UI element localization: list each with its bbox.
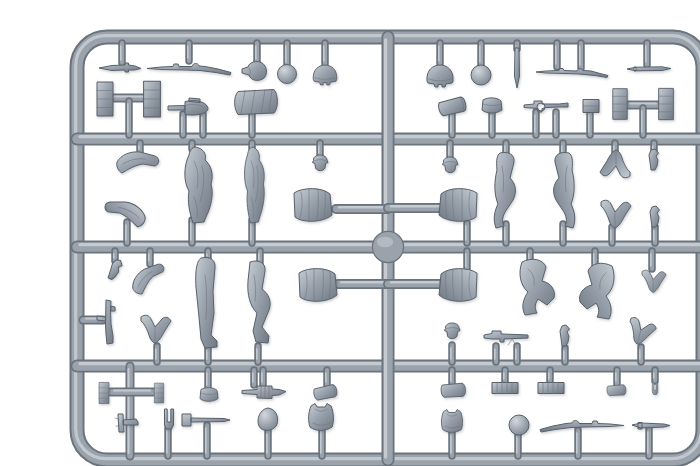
gate [188,43,189,61]
leg-straight-1 [196,257,217,348]
gate [535,112,536,135]
gate [466,223,467,243]
spoon-1 [258,408,278,430]
gate [257,346,258,362]
walking-legs-2 [554,152,575,228]
tunic-2 [441,410,462,433]
pick-1 [632,423,670,430]
gate [648,429,649,456]
gate [495,346,496,362]
center-boss [372,231,404,263]
helmet-1 [313,65,337,85]
hand-1 [649,149,659,170]
cylinder-1 [607,385,626,396]
gate [564,348,565,362]
rifle-1 [147,63,231,75]
ribbed-box-1 [492,383,518,394]
gate [126,222,127,243]
gate [182,114,183,135]
gate [256,43,257,62]
ammo-crate-1 [97,82,113,116]
gate [191,220,192,243]
head-3 [445,323,461,339]
gate [167,428,168,456]
gate [654,370,655,381]
head-ball-1 [278,65,297,84]
gate [562,224,563,243]
gate [191,143,192,149]
gate [589,111,590,135]
gate [517,434,518,456]
helmet-2 [427,65,453,87]
arms-pair-2 [601,200,631,228]
gate [451,112,452,135]
gate [646,43,647,65]
gate [577,430,578,456]
gate [324,43,325,64]
gate [262,370,263,385]
gate [451,345,452,362]
leg-bent-1 [248,261,270,343]
torso-4 [439,269,477,302]
rifle-bayonet-1 [536,69,608,78]
gate [451,432,452,456]
ammo-crate-5 [99,382,109,403]
gate [202,114,203,135]
gate [504,370,505,382]
runner-left-bottom-vertical [128,366,130,456]
head-ball-2 [471,65,491,85]
peg-1 [515,48,520,88]
gate [128,101,129,135]
gate [321,429,322,456]
pouch-2 [200,388,218,402]
greatcoat-figure-2 [245,147,265,223]
gate [139,143,140,152]
gate [121,43,122,63]
mess-tin-1 [438,96,467,116]
gate [286,43,287,65]
ammo-belt-1 [242,386,286,399]
fork-1 [165,409,174,429]
mg34-1 [524,101,568,112]
canteen-1 [242,62,266,81]
ammo-box-1 [583,100,599,113]
sprue-photo: Grey injection-moulded plastic model spr… [40,16,700,466]
gate [439,43,440,64]
kneeling-legs-1 [520,259,554,315]
torso-arm-lower-left [338,282,388,284]
gate [319,143,320,156]
torso-2 [439,189,477,222]
arm-5 [625,317,658,348]
hand-4 [560,325,570,346]
sprue-image [40,16,700,466]
gate [549,370,550,382]
mg42-1 [484,331,528,345]
torso-1 [294,189,332,222]
gate [114,251,115,261]
torso-3 [299,269,337,302]
tunic-1 [309,404,334,431]
hand-2 [650,206,660,227]
gate [555,112,556,135]
gate [580,43,581,68]
gate [466,251,467,270]
arm-4 [141,315,171,343]
mess-tin-3 [441,383,465,397]
head-1 [313,155,329,171]
pouch-1 [482,98,502,113]
greatcoat-figure-1 [185,147,212,223]
gate [267,431,268,456]
arm-1 [117,152,159,173]
gate [480,43,481,65]
gate [206,425,207,456]
ammo-crate-3 [613,89,627,120]
sprue-runners [77,37,700,460]
arms-pair-1 [600,150,630,178]
gate [611,227,612,243]
gate [651,251,652,269]
gate [516,346,517,362]
torso-arm-upper-left [336,207,388,209]
gate [449,143,450,158]
kneeling-legs-2 [580,263,614,319]
gate [149,251,150,264]
gate [616,370,617,384]
gate [207,347,208,362]
torso-arm-lower-right [388,282,441,284]
ammo-crate-2 [144,81,161,117]
gate [253,370,254,385]
gate [640,347,641,362]
gate [326,370,327,385]
gate [654,227,655,243]
gate [207,370,208,388]
gate [251,113,252,135]
torso-arm-upper-right [388,206,443,208]
ammo-crate-4 [659,88,674,119]
gate [556,43,557,67]
gate [156,346,157,362]
mess-tin-2 [313,384,338,400]
rifle-2 [540,420,624,432]
crate-bar-bottom-left [111,390,153,392]
walking-legs-1 [494,152,515,228]
shovel-1 [168,98,208,115]
head-ball-3 [509,415,529,435]
head-2 [443,157,459,173]
gate [251,220,252,243]
ammo-crate-6 [154,383,163,403]
gate [491,112,492,135]
ribbed-box-2 [538,383,564,394]
arms-pair-3 [642,270,666,292]
hand-3 [106,258,123,281]
cleaning-rod-1 [627,67,671,71]
coat-roll-1 [235,90,278,115]
gate [642,108,643,135]
gate [505,224,506,243]
gate [451,370,452,384]
